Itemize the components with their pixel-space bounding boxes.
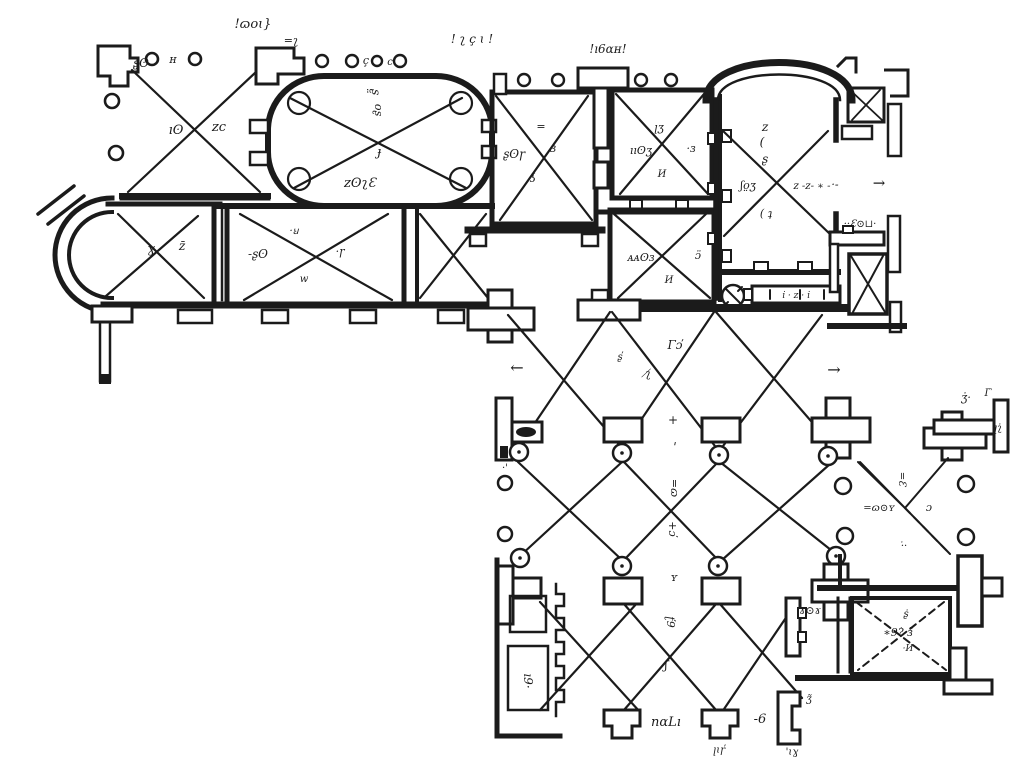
square-hall-east-upper	[612, 90, 712, 209]
annotation-text: ·'	[502, 463, 508, 474]
annotation-text: ııʘʒ	[630, 144, 653, 157]
annotation-text: ∗9?̇ ɜ̃	[883, 626, 913, 639]
annotation-text: ʂ̕	[617, 352, 623, 363]
east-mid-bays	[830, 216, 904, 332]
annotation-text: Γɔ̕	[666, 338, 683, 352]
annotation-text: ʖ	[530, 171, 536, 185]
annotation-text: ʅ̸	[641, 367, 652, 380]
west-apse	[38, 186, 222, 384]
annotation-text: ꞌ	[673, 440, 676, 454]
annotation-text: !ɷoɩ}	[234, 17, 271, 32]
annotation-text: ɜ	[550, 141, 556, 155]
annotation-text: ʏ	[670, 571, 678, 584]
annotation-text: ɤ⊙ɤ	[799, 604, 821, 617]
ne-corner-rooms	[838, 58, 908, 156]
annotation-text: ɣ	[147, 242, 155, 257]
annotation-text: ꞁʒ	[654, 121, 665, 134]
annotation-text: ʂ̤	[366, 89, 383, 95]
annotation-text: ꞁʅ̇	[994, 423, 1002, 434]
annotation-text: ʒ̃	[805, 694, 812, 705]
annotation-text: ı9·	[521, 673, 535, 688]
annotation-text: И	[664, 275, 674, 286]
annotation-text: ·-	[831, 178, 838, 191]
annotation-text: nɑLı	[651, 715, 681, 730]
annotation-text: Γ̇	[984, 388, 993, 399]
annotation-text: oʂ	[372, 104, 385, 117]
annotation-text: ıʘ	[169, 123, 184, 138]
annotation-text: ·ꞟ	[289, 226, 299, 237]
annotation-text: ! ʅ ç ɩ !	[451, 32, 493, 46]
annotation-text: +	[668, 413, 678, 427]
cloister-pier-row-1	[496, 398, 870, 490]
floor-plan-page: !ɷoɩ}=ʅ! ʅ ç ɩ !!ı6ɑʜ!ʂʘʜıʘᴢcçcʂ̤oʂɟᴢʘʅƐ…	[0, 0, 1024, 774]
annotation-text: -6	[754, 712, 767, 727]
annotation-text: 'ɩɣ	[786, 747, 799, 758]
annotation-text: =ɷ⊙ʏ	[863, 503, 895, 514]
annotation-text: ᴢ̄	[178, 239, 186, 253]
annotation-text: c	[387, 57, 393, 68]
annotation-text: ←	[510, 358, 523, 377]
annotation-text: ᴢc	[211, 120, 227, 135]
annotation-text: ᴢ -ᴢ- ∗ -	[792, 181, 831, 192]
annotation-text: ɔ̈	[695, 249, 701, 262]
annotation-text: ɔ	[926, 501, 932, 514]
square-hall-west	[468, 74, 602, 246]
annotation-text: ʃo̤ʒ	[737, 179, 757, 192]
annotation-text: ʜ	[168, 53, 177, 66]
annotation-text: ʂ	[762, 152, 768, 166]
annotation-text: ı̇ · ᴢ · ı̇	[782, 291, 810, 301]
annotation-text: ɟ	[374, 145, 382, 160]
se-side-wing	[858, 400, 1008, 554]
annotation-text: ··Ɛ⊙⊔·	[844, 219, 877, 230]
annotation-text: И	[657, 169, 667, 180]
annotation-text: ʒ̇·	[960, 391, 971, 404]
annotation-text: ᴢ	[761, 120, 769, 134]
annotation-text: ( ʇ	[760, 207, 773, 220]
annotation-text: ʂʘ	[133, 56, 149, 70]
annotation-text: =	[536, 120, 545, 133]
annotation-text: ç	[363, 54, 369, 67]
annotation-text: +ɔ̕	[666, 521, 679, 537]
annotation-text: ᴀᴀʘɜ	[626, 251, 654, 264]
annotation-text: →	[827, 360, 840, 379]
compass-rose	[722, 285, 744, 307]
floor-plan-drawing: !ɷoɩ}=ʅ! ʅ ç ɩ !!ı6ɑʜ!ʂʘʜıʘᴢcçcʂ̤oʂɟᴢʘʅƐ…	[0, 0, 1024, 774]
annotation-text: =ɷ	[668, 479, 681, 497]
annotation-text: ·ɜ	[686, 142, 695, 155]
annotation-text: =ʅ	[284, 34, 299, 47]
annotation-text: w	[300, 274, 309, 285]
annotation-text: ꞁɩɼ̕	[713, 745, 726, 756]
annotation-text: ʈ̕9	[664, 616, 677, 627]
annotation-text: =Ɛ	[896, 472, 907, 487]
annotation-text: ·И	[903, 644, 914, 654]
annotation-text: ·ɼ	[336, 245, 346, 258]
annotation-text: →	[873, 174, 886, 192]
annotation-text: ʂ̇	[903, 609, 908, 620]
annotation-text: -ʂʘ	[248, 247, 268, 261]
annotation-text: !ı6ɑʜ!	[589, 42, 626, 56]
annotation-text: ʂʘɼ	[503, 147, 526, 161]
annotation-text: (	[760, 135, 765, 149]
annotation-text: ᴢʘʅƐ	[343, 176, 378, 191]
annotation-text: ·̇·	[901, 541, 907, 552]
